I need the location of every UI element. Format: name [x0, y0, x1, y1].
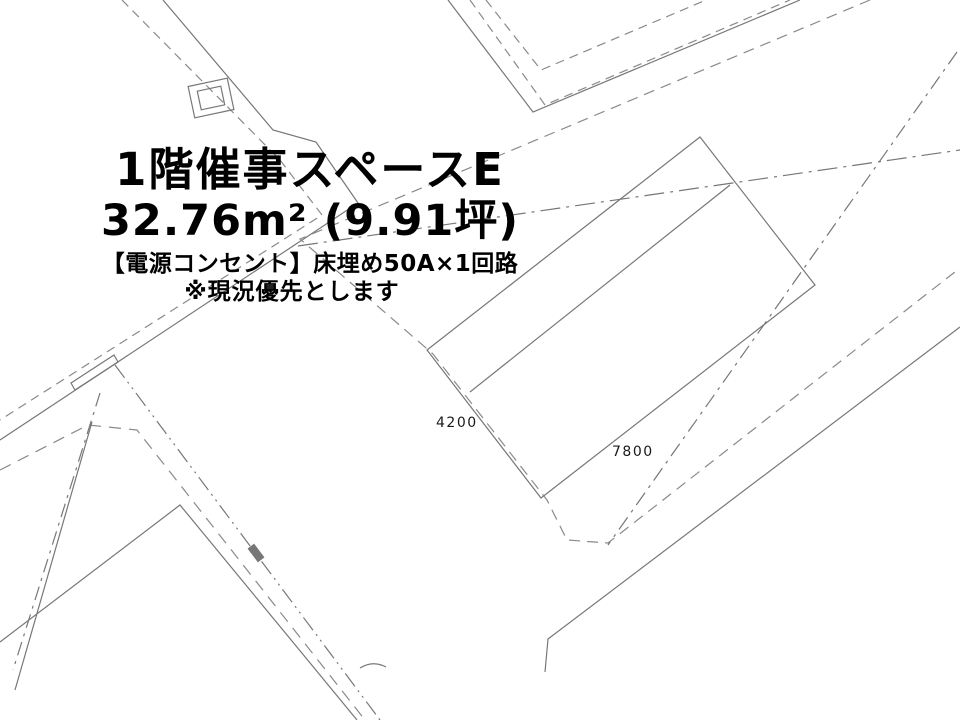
- utility-end-cap: [248, 545, 263, 562]
- site-plan-drawing: [0, 0, 960, 720]
- dimension-4200-label: 4200: [436, 416, 478, 430]
- steep-centerline: [13, 393, 100, 670]
- solid-peak-line: [0, 505, 357, 720]
- lower-left-walls: [0, 393, 386, 720]
- dashed-peak-line: [0, 425, 365, 720]
- lower-wall-line: [545, 327, 960, 672]
- centerline-diagonal: [608, 52, 957, 545]
- space-title-label: 1階催事スペースE: [60, 147, 560, 192]
- power-outlet-note-label: 【電源コンセント】床埋め50A×1回路: [60, 253, 560, 276]
- utility-line: [115, 365, 380, 720]
- door-swing-arc: [360, 664, 386, 668]
- column-symbol: [188, 78, 234, 118]
- caveat-note-label: ※現況優先とします: [42, 281, 542, 304]
- building-corner-v: [448, 0, 800, 112]
- floor-plan-canvas: 1階催事スペースE 32.76m² (9.91坪) 【電源コンセント】床埋め50…: [0, 0, 960, 720]
- space-area-label: 32.76m² (9.91坪): [60, 200, 560, 243]
- dimension-7800-label: 7800: [612, 445, 654, 459]
- steep-wall-line: [15, 422, 92, 690]
